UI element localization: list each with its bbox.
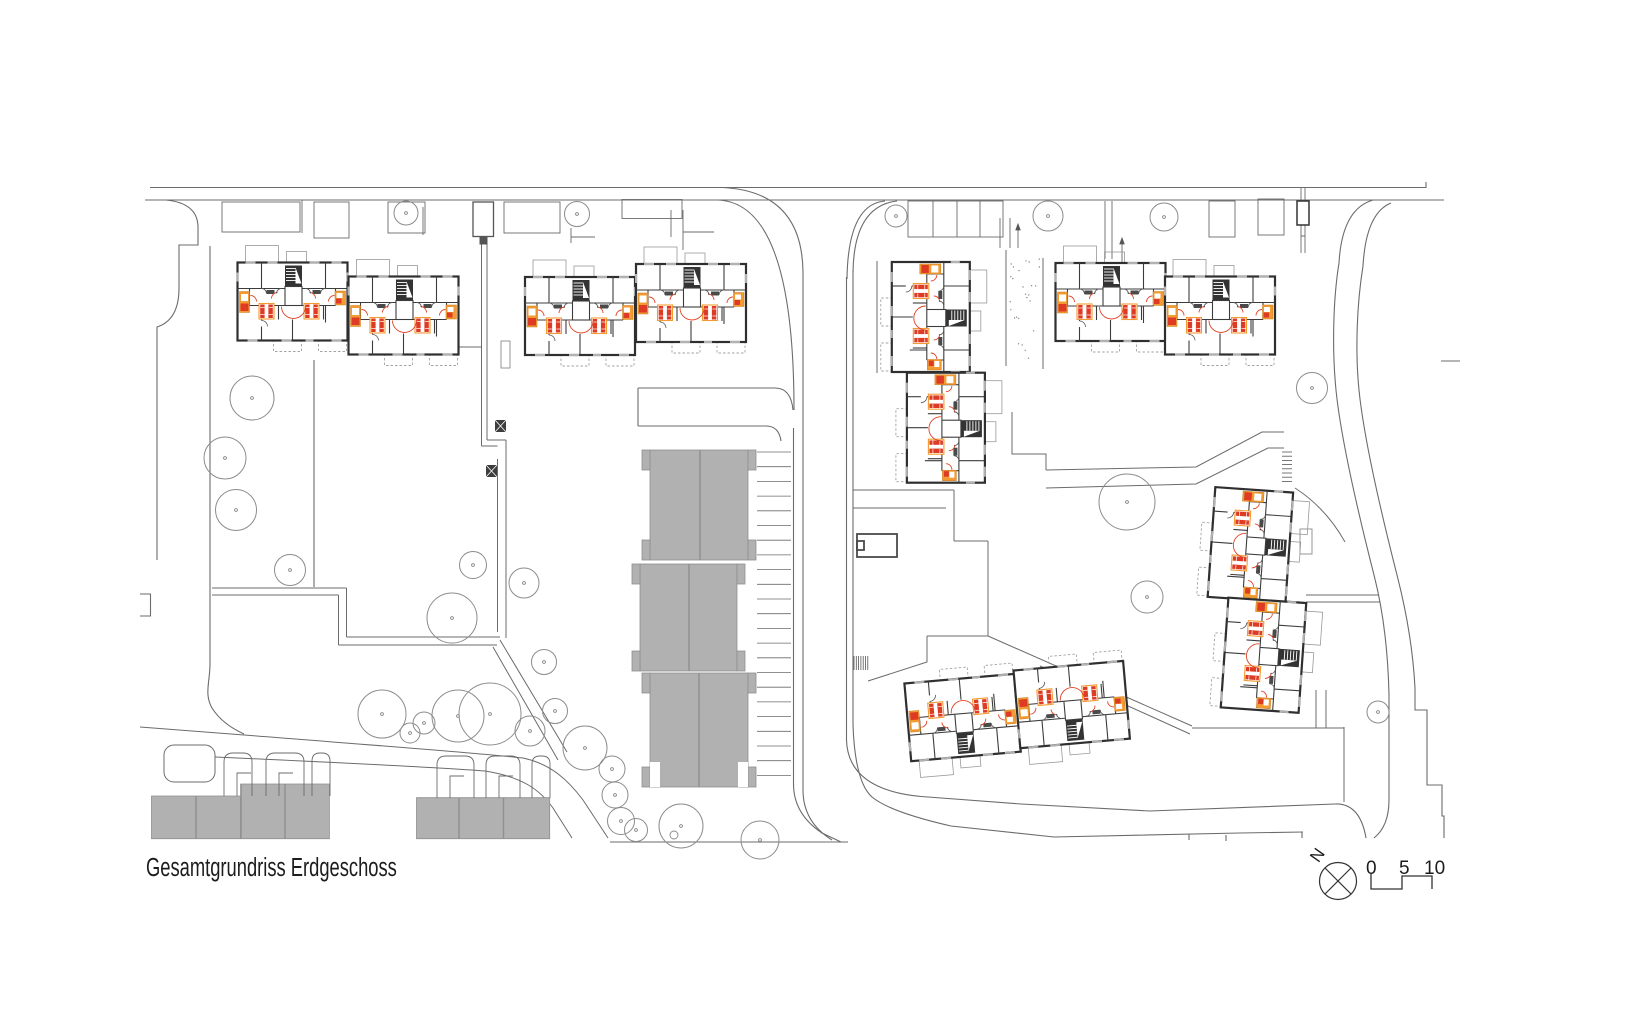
svg-text:5: 5 <box>1399 858 1410 879</box>
svg-text:10: 10 <box>1424 858 1445 879</box>
svg-text:Gesamtgrundriss Erdgeschoss: Gesamtgrundriss Erdgeschoss <box>146 853 397 882</box>
svg-text:0: 0 <box>1366 858 1377 879</box>
